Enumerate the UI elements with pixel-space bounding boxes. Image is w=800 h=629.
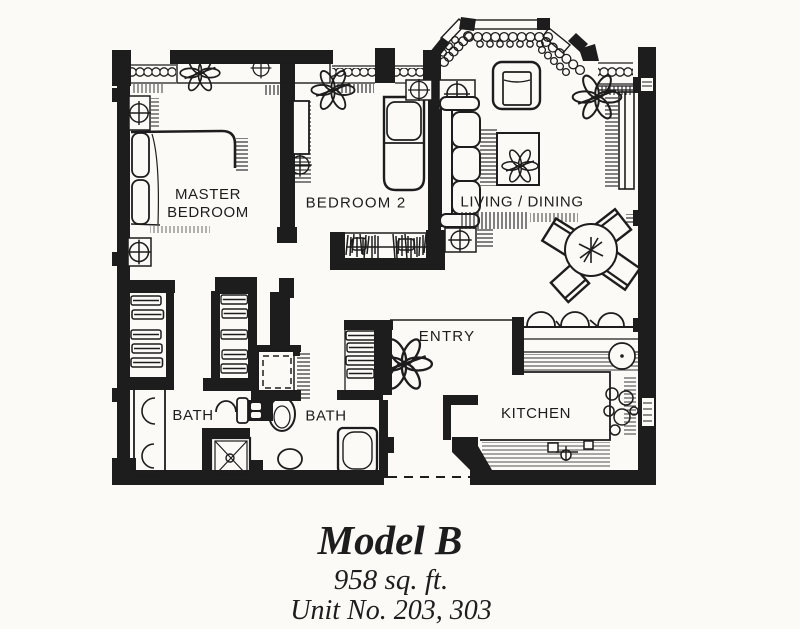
svg-text:Unit No. 203, 303: Unit No. 203, 303	[290, 595, 491, 626]
svg-text:KITCHEN: KITCHEN	[501, 405, 571, 422]
svg-text:958 sq. ft.: 958 sq. ft.	[334, 564, 448, 596]
svg-text:BEDROOM 2: BEDROOM 2	[306, 195, 407, 212]
svg-text:MASTER: MASTER	[175, 186, 241, 203]
svg-text:LIVING / DINING: LIVING / DINING	[460, 194, 583, 211]
svg-text:ENTRY: ENTRY	[419, 328, 476, 345]
svg-text:Model B: Model B	[317, 517, 463, 563]
svg-text:BATH: BATH	[305, 408, 346, 425]
svg-text:BATH: BATH	[172, 407, 213, 424]
svg-text:BEDROOM: BEDROOM	[167, 204, 249, 221]
